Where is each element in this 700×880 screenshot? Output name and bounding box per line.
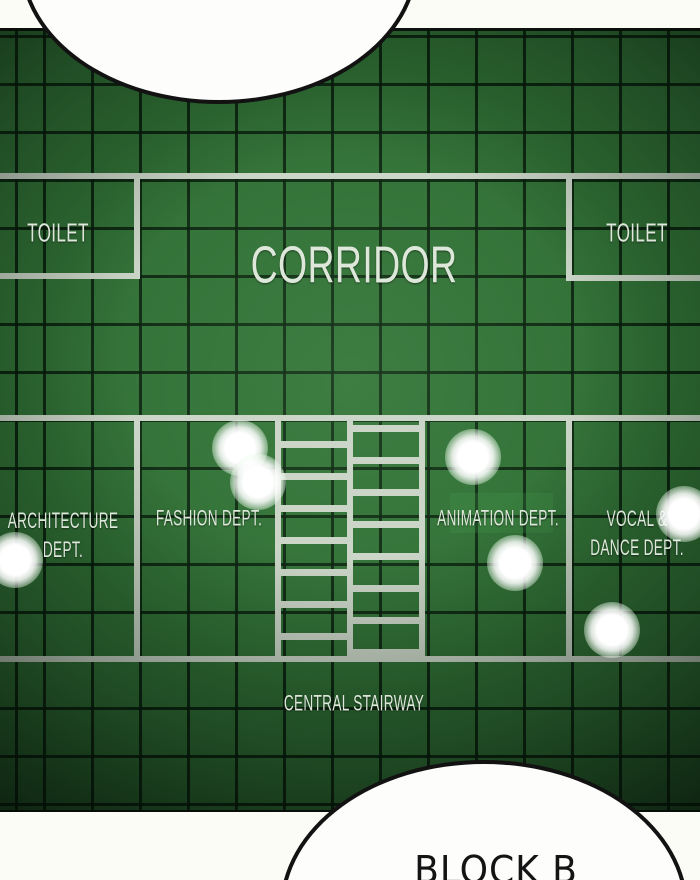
- toilet-right-label: TOILET: [606, 219, 668, 248]
- corridor-label: CORRIDOR: [251, 252, 458, 281]
- ladder-rung: [353, 425, 419, 432]
- person-marker-vocal-dance-dept: [584, 602, 640, 658]
- person-marker-fashion-dept: [230, 454, 286, 510]
- wall-line: [566, 415, 572, 662]
- ladder-rung: [353, 649, 419, 656]
- wall-line: [0, 273, 140, 279]
- ladder-rung: [281, 569, 347, 576]
- animation-dept-label: ANIMATION DEPT.: [437, 504, 559, 533]
- person-marker-animation-dept: [445, 429, 501, 485]
- central-stairway-label: CENTRAL STAIRWAY: [284, 689, 424, 718]
- wall-line: [0, 173, 700, 179]
- fashion-dept-label: FASHION DEPT.: [156, 504, 262, 533]
- ladder-rung: [353, 521, 419, 528]
- ladder-rung: [281, 505, 347, 512]
- wall-line: [134, 173, 140, 279]
- ladder-rung: [281, 537, 347, 544]
- architecture-dept-label-line1: ARCHITECTURE: [8, 506, 119, 535]
- ladder-rung: [281, 601, 347, 608]
- ladder-rung: [281, 633, 347, 640]
- comic-panel-floor-plan: TOILET TOILET CORRIDOR ARCHITECTURE DEPT…: [0, 0, 700, 880]
- wall-line: [134, 415, 140, 662]
- block-b-label: BLOCK B: [414, 851, 578, 880]
- ladder-rung: [353, 553, 419, 560]
- ladder-rung: [353, 457, 419, 464]
- wall-line: [566, 275, 700, 281]
- ladder-rung: [353, 585, 419, 592]
- person-marker-animation-dept: [487, 535, 543, 591]
- ladder-rung: [281, 441, 347, 448]
- wall-line: [566, 173, 572, 281]
- toilet-left-label: TOILET: [27, 219, 89, 248]
- ladder-rung: [281, 473, 347, 480]
- ladder-rung: [353, 617, 419, 624]
- ladder-rung: [353, 489, 419, 496]
- wall-line: [419, 415, 425, 662]
- wall-line: [347, 415, 353, 662]
